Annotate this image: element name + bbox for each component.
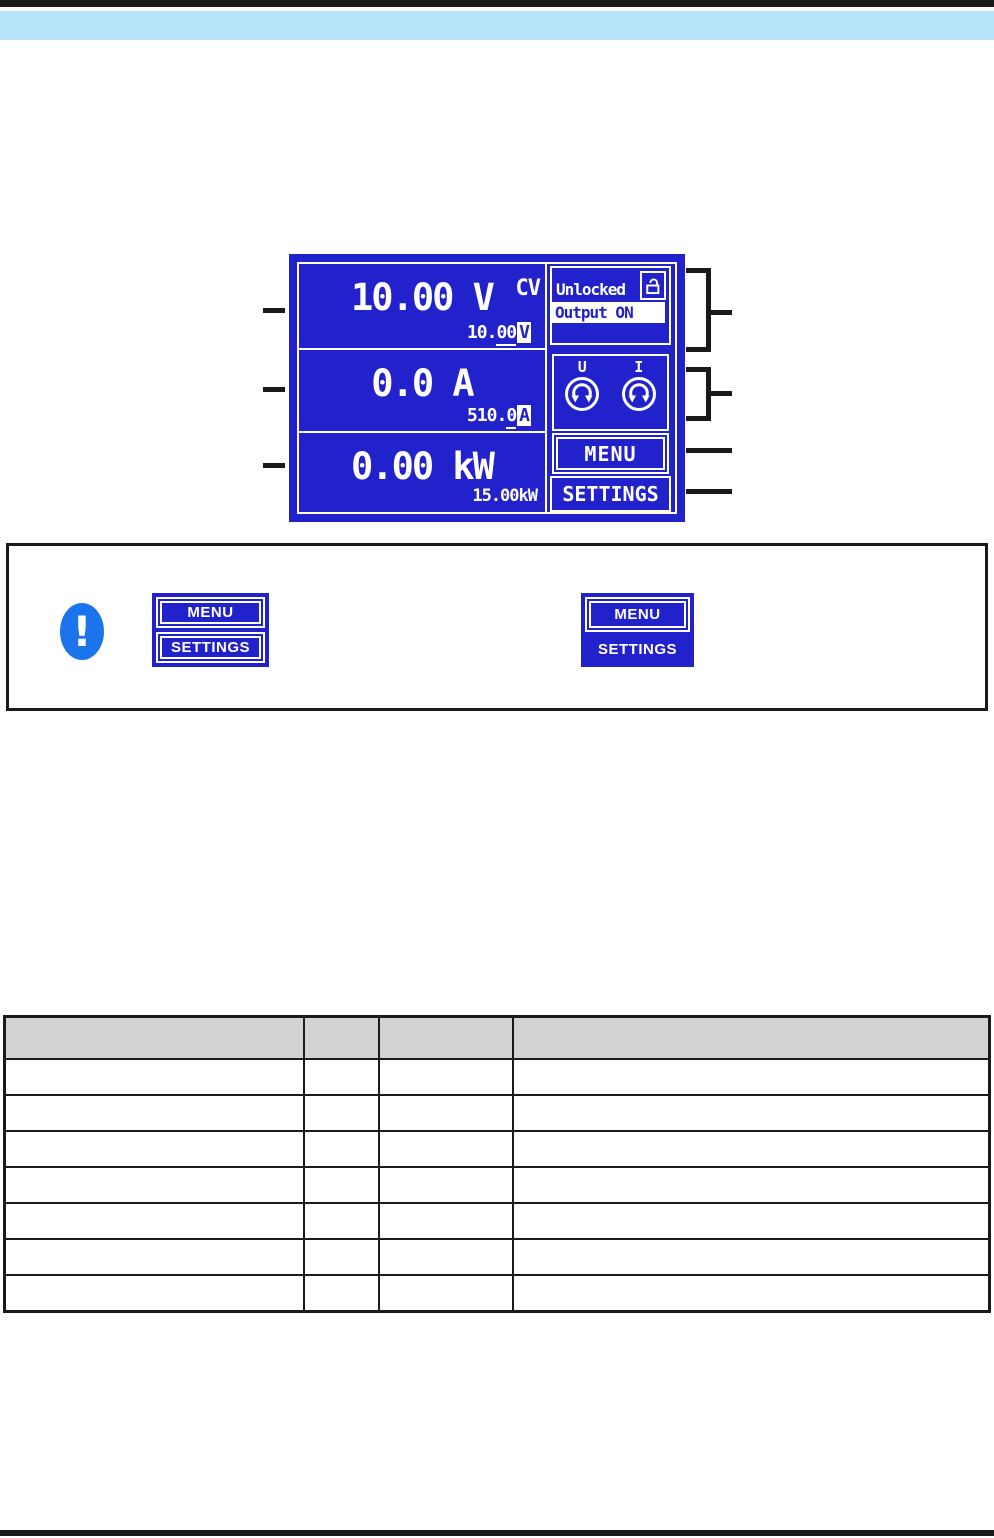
settings-callout-line: [686, 489, 732, 494]
table-header: [5, 1017, 990, 1060]
table-cell: [379, 1167, 513, 1203]
note-box: ! MENU SETTINGS MENU SETTINGS: [6, 543, 988, 711]
regulation-mode-badge: CV: [516, 276, 541, 301]
lock-status-text: Unlocked: [556, 280, 625, 299]
knob-bracket-bottom: [686, 416, 711, 421]
page-top-rule: [0, 0, 994, 7]
status-bracket-bottom: [686, 347, 711, 352]
table-row: [5, 1167, 990, 1203]
settings-button-example-label: SETTINGS: [160, 636, 261, 659]
voltage-unit-badge: V: [517, 322, 531, 343]
table-header-row: [5, 1017, 990, 1060]
current-set-prefix: 510.: [467, 405, 506, 426]
settings-button[interactable]: SETTINGS: [550, 476, 671, 512]
voltage-knob-label: U: [578, 359, 587, 375]
voltage-row-callout-line: [263, 308, 285, 313]
table-row: [5, 1239, 990, 1275]
page-bottom-rule: [0, 1530, 994, 1536]
table-cell: [513, 1275, 990, 1312]
voltage-set-prefix: 10.: [467, 322, 497, 343]
power-row-callout-line: [263, 463, 285, 468]
table-cell: [513, 1167, 990, 1203]
menu-button-example[interactable]: MENU: [585, 597, 690, 632]
table-cell: [304, 1095, 380, 1131]
table-cell: [304, 1131, 380, 1167]
section-header-bar: [0, 11, 994, 40]
voltage-set-digits: 00: [496, 322, 516, 346]
settings-button-example[interactable]: SETTINGS: [156, 632, 265, 663]
power-actual: 0.00 kW: [299, 445, 545, 488]
table-header-cell: [513, 1017, 990, 1060]
table-row: [5, 1095, 990, 1131]
current-set-digits: 0: [506, 405, 516, 429]
voltage-knob[interactable]: U: [563, 359, 601, 413]
table-cell: [513, 1203, 990, 1239]
rotary-knob-icon: [563, 375, 601, 413]
current-row-callout-line: [263, 387, 285, 392]
status-area: Unlocked Output ON: [550, 266, 671, 345]
menu-button-example[interactable]: MENU: [156, 597, 265, 628]
output-status-badge[interactable]: Output ON: [552, 302, 665, 323]
table-cell: [304, 1275, 380, 1312]
current-cell: 0.0 A 510.0A: [299, 350, 547, 433]
table-cell: [304, 1059, 380, 1095]
table-cell: [379, 1239, 513, 1275]
open-padlock-icon: [640, 271, 666, 300]
touch-area-example-left: MENU SETTINGS: [152, 593, 269, 667]
exclamation-icon: !: [60, 603, 104, 660]
table-cell: [5, 1275, 304, 1312]
table-cell: [5, 1131, 304, 1167]
table-cell: [5, 1167, 304, 1203]
menu-button-example-label: MENU: [160, 601, 261, 624]
display-screen: 10.00 V CV 10.00V 0.0 A 510.0A 0.00 kW 1…: [297, 262, 677, 514]
knob-bracket-tick: [709, 391, 732, 396]
power-set-value: 15.00kW: [472, 486, 537, 506]
table-cell: [304, 1203, 380, 1239]
table-cell: [304, 1239, 380, 1275]
table-row: [5, 1275, 990, 1312]
current-actual: 0.0 A: [299, 362, 545, 405]
table-cell: [5, 1095, 304, 1131]
table-row: [5, 1059, 990, 1095]
power-cell: 0.00 kW 15.00kW: [299, 433, 547, 512]
table-cell: [379, 1131, 513, 1167]
device-display: 10.00 V CV 10.00V 0.0 A 510.0A 0.00 kW 1…: [289, 254, 685, 522]
table-cell: [379, 1095, 513, 1131]
table-header-cell: [5, 1017, 304, 1060]
table-cell: [379, 1203, 513, 1239]
table-row: [5, 1131, 990, 1167]
settings-button-example[interactable]: SETTINGS: [585, 636, 690, 663]
current-knob-label: I: [634, 359, 643, 375]
menu-button-label: MENU: [556, 437, 665, 470]
settings-button-label: SETTINGS: [562, 482, 658, 506]
manual-page: 10.00 V CV 10.00V 0.0 A 510.0A 0.00 kW 1…: [0, 0, 994, 1538]
current-knob[interactable]: I: [620, 359, 658, 413]
table-cell: [379, 1275, 513, 1312]
table-cell: [5, 1059, 304, 1095]
table-cell: [304, 1167, 380, 1203]
status-bracket-tick: [709, 310, 732, 315]
voltage-set-value: 10.00V: [467, 322, 531, 343]
table-header-cell: [379, 1017, 513, 1060]
table-body: [5, 1059, 990, 1312]
reference-table: [3, 1015, 991, 1313]
table-cell: [5, 1239, 304, 1275]
menu-button[interactable]: MENU: [552, 433, 669, 474]
table-cell: [513, 1095, 990, 1131]
table-header-cell: [304, 1017, 380, 1060]
voltage-actual: 10.00 V: [299, 276, 545, 319]
touch-area-example-right: MENU SETTINGS: [581, 593, 694, 667]
table-cell: [5, 1203, 304, 1239]
table-cell: [513, 1239, 990, 1275]
table-cell: [379, 1059, 513, 1095]
current-set-value: 510.0A: [467, 405, 531, 426]
voltage-cell: 10.00 V CV 10.00V: [299, 264, 547, 350]
knob-area: U I: [552, 354, 669, 431]
current-unit-badge: A: [517, 405, 531, 426]
rotary-knob-icon: [620, 375, 658, 413]
menu-button-example-label: MENU: [589, 601, 686, 628]
menu-callout-line: [686, 448, 732, 453]
table-cell: [513, 1131, 990, 1167]
table-row: [5, 1203, 990, 1239]
table-cell: [513, 1059, 990, 1095]
